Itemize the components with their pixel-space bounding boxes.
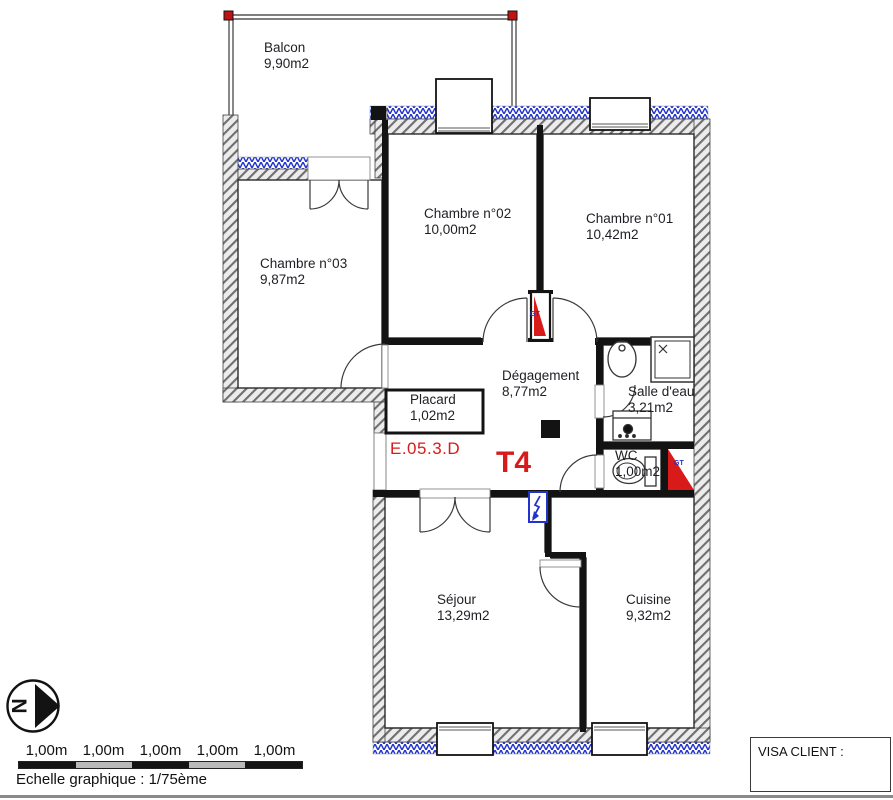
room-label-degagement: Dégagement8,77m2 — [502, 368, 579, 399]
gt-shaft-right — [668, 449, 694, 490]
room-label-cuisine: Cuisine9,32m2 — [626, 592, 671, 623]
north-letter: N — [7, 698, 30, 713]
scale-labels: 1,00m 1,00m 1,00m 1,00m 1,00m — [18, 742, 303, 759]
visa-client-box: VISA CLIENT : — [750, 737, 891, 792]
gt-label-right: GT — [674, 460, 684, 467]
room-label-chambre02: Chambre n°0210,00m2 — [424, 206, 511, 237]
washing-machine-symbol — [613, 411, 651, 440]
room-label-balcon: Balcon9,90m2 — [264, 40, 309, 71]
room-label-sejour: Séjour13,29m2 — [437, 592, 490, 623]
wall-corner-block — [371, 106, 386, 120]
scale-bar: 1,00m 1,00m 1,00m 1,00m 1,00m — [18, 742, 303, 769]
unit-type-label: T4 — [496, 446, 531, 480]
scale-label: 1,00m — [18, 742, 75, 759]
shower-symbol — [651, 337, 694, 382]
room-label-wc: WC1,00m2 — [615, 448, 660, 479]
scale-label: 1,00m — [75, 742, 132, 759]
conduit-square — [541, 420, 560, 438]
scale-caption: Echelle graphique : 1/75ème — [16, 771, 207, 788]
floor-plan: N Balcon9,90m2 Chambre n°0210,00m2 Chamb… — [0, 0, 893, 800]
visa-client-label: VISA CLIENT : — [758, 744, 844, 759]
room-label-chambre03: Chambre n°039,87m2 — [260, 256, 347, 287]
unit-code: E.05.3.D — [390, 439, 460, 459]
bottom-border-line — [0, 795, 893, 798]
sink-symbol — [608, 341, 636, 377]
room-label-placard: Placard1,02m2 — [410, 392, 456, 423]
scale-segments — [18, 761, 303, 769]
scale-label: 1,00m — [246, 742, 303, 759]
room-label-salle-eau: Salle d'eau3,21m2 — [628, 384, 694, 415]
scale-label: 1,00m — [189, 742, 246, 759]
electric-panel-icon — [529, 492, 547, 522]
room-label-chambre01: Chambre n°0110,42m2 — [586, 211, 673, 242]
wall-channel — [374, 433, 386, 490]
scale-label: 1,00m — [132, 742, 189, 759]
north-arrow-icon: N — [7, 681, 60, 732]
gt-label-top: GT — [530, 311, 540, 318]
